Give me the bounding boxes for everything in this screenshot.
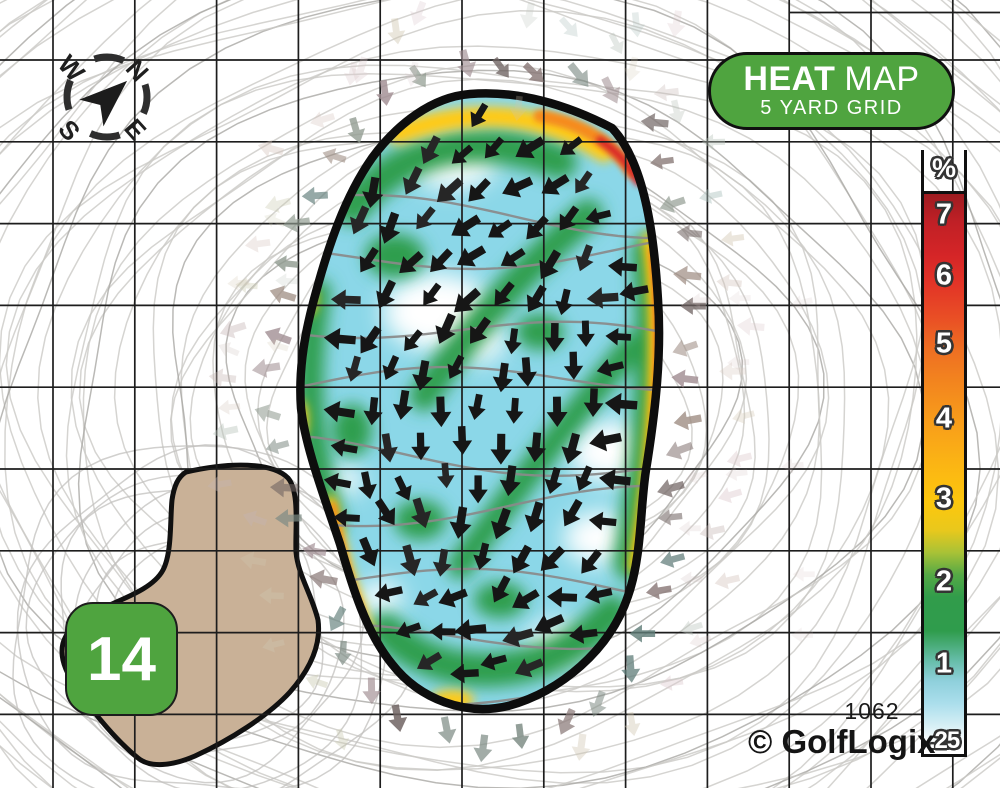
fringe-arrow bbox=[672, 264, 702, 286]
fringe-arrow bbox=[453, 47, 479, 80]
fringe-arrow bbox=[281, 212, 311, 235]
fringe-arrow bbox=[250, 356, 281, 380]
fringe-arrow bbox=[702, 134, 726, 150]
fringe-arrow bbox=[244, 234, 271, 255]
fringe-arrow bbox=[629, 625, 655, 643]
fringe-arrow bbox=[570, 733, 592, 763]
fringe-arrow bbox=[386, 703, 410, 734]
fringe-arrow bbox=[301, 186, 328, 205]
heat-map-title-light: MAP bbox=[844, 60, 919, 98]
legend-label: 4 bbox=[924, 403, 964, 436]
slope-legend-bar: 7 6 5 4 3 2 1 .25 bbox=[921, 191, 967, 757]
fringe-arrow bbox=[208, 367, 237, 389]
fringe-arrow bbox=[670, 335, 701, 360]
heat-map-badge: HEATMAP 5 YARD GRID bbox=[708, 52, 955, 130]
fringe-arrow bbox=[488, 54, 515, 83]
heat-map-page: N E S W HEATMAP 5 YARD GRID % 7 6 5 4 3 … bbox=[0, 0, 1000, 788]
fringe-arrow bbox=[510, 723, 530, 750]
fringe-arrow bbox=[791, 627, 813, 642]
legend-label: 1 bbox=[924, 648, 964, 681]
legend-label: 2 bbox=[924, 565, 964, 598]
fringe-arrow bbox=[789, 293, 814, 313]
legend-label: 7 bbox=[924, 198, 964, 231]
fringe-arrow bbox=[678, 617, 704, 639]
fringe-arrow bbox=[215, 338, 241, 360]
heat-map-title: HEATMAP bbox=[743, 62, 919, 96]
map-number: 1062 bbox=[832, 698, 912, 725]
legend-unit: % bbox=[921, 153, 967, 184]
fringe-arrow bbox=[649, 152, 675, 171]
legend-label: 3 bbox=[924, 483, 964, 516]
fringe-arrow bbox=[720, 229, 745, 248]
fringe-arrow bbox=[435, 715, 459, 745]
legend-label: 5 bbox=[924, 327, 964, 360]
compass: N E S W bbox=[52, 42, 162, 152]
fringe-arrow bbox=[679, 521, 701, 536]
compass-east-label: E bbox=[118, 113, 152, 146]
fringe-arrow bbox=[697, 186, 723, 207]
fringe-arrow bbox=[217, 399, 240, 416]
fringe-arrow bbox=[596, 74, 626, 108]
fringe-arrow bbox=[307, 567, 339, 592]
hole-number-badge: 14 bbox=[65, 602, 178, 716]
fringe-arrow bbox=[263, 192, 293, 216]
fringe-arrow bbox=[725, 465, 749, 483]
fringe-arrow bbox=[320, 145, 348, 168]
fringe-arrow bbox=[472, 734, 494, 764]
compass-west-label: W bbox=[52, 49, 91, 88]
hole-number: 14 bbox=[87, 624, 156, 695]
legend-label: 6 bbox=[924, 259, 964, 292]
heat-map-title-strong: HEAT bbox=[743, 60, 835, 98]
fringe-arrow bbox=[211, 420, 240, 443]
heat-map-subtitle: 5 YARD GRID bbox=[760, 96, 902, 121]
compass-south-label: S bbox=[52, 114, 86, 147]
fringe-arrow bbox=[698, 520, 727, 543]
fringe-arrow bbox=[672, 408, 703, 432]
fringe-arrow bbox=[716, 484, 744, 507]
fringe-arrow bbox=[323, 603, 352, 635]
fringe-arrow bbox=[793, 567, 815, 582]
fringe-arrow bbox=[716, 273, 743, 293]
fringe-arrow bbox=[781, 457, 804, 474]
copyright: © GolfLogix bbox=[748, 723, 935, 761]
fringe-arrow bbox=[736, 316, 765, 337]
fringe-arrow bbox=[713, 569, 742, 592]
fringe-arrow bbox=[273, 254, 298, 273]
fringe-arrow bbox=[653, 83, 680, 103]
